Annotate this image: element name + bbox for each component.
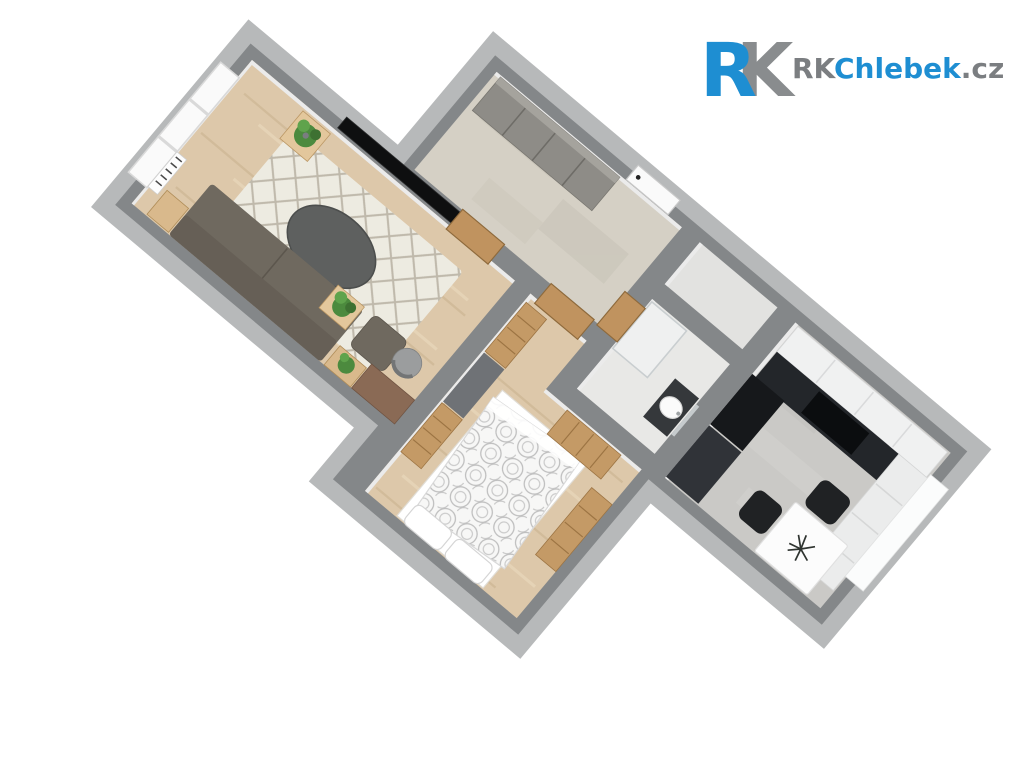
floor-plan-render: K R RKChlebek.cz: [0, 0, 1024, 768]
floor-plan-screenshot: K R RKChlebek.cz: [0, 0, 1024, 768]
logo-monogram-r-icon: R: [700, 28, 757, 114]
logo-wordmark: RKChlebek.cz: [792, 52, 1004, 85]
logo-wordmark-name: Chlebek: [834, 52, 962, 85]
logo-wordmark-tld: .cz: [961, 52, 1005, 85]
logo-wordmark-prefix: RK: [792, 52, 837, 85]
